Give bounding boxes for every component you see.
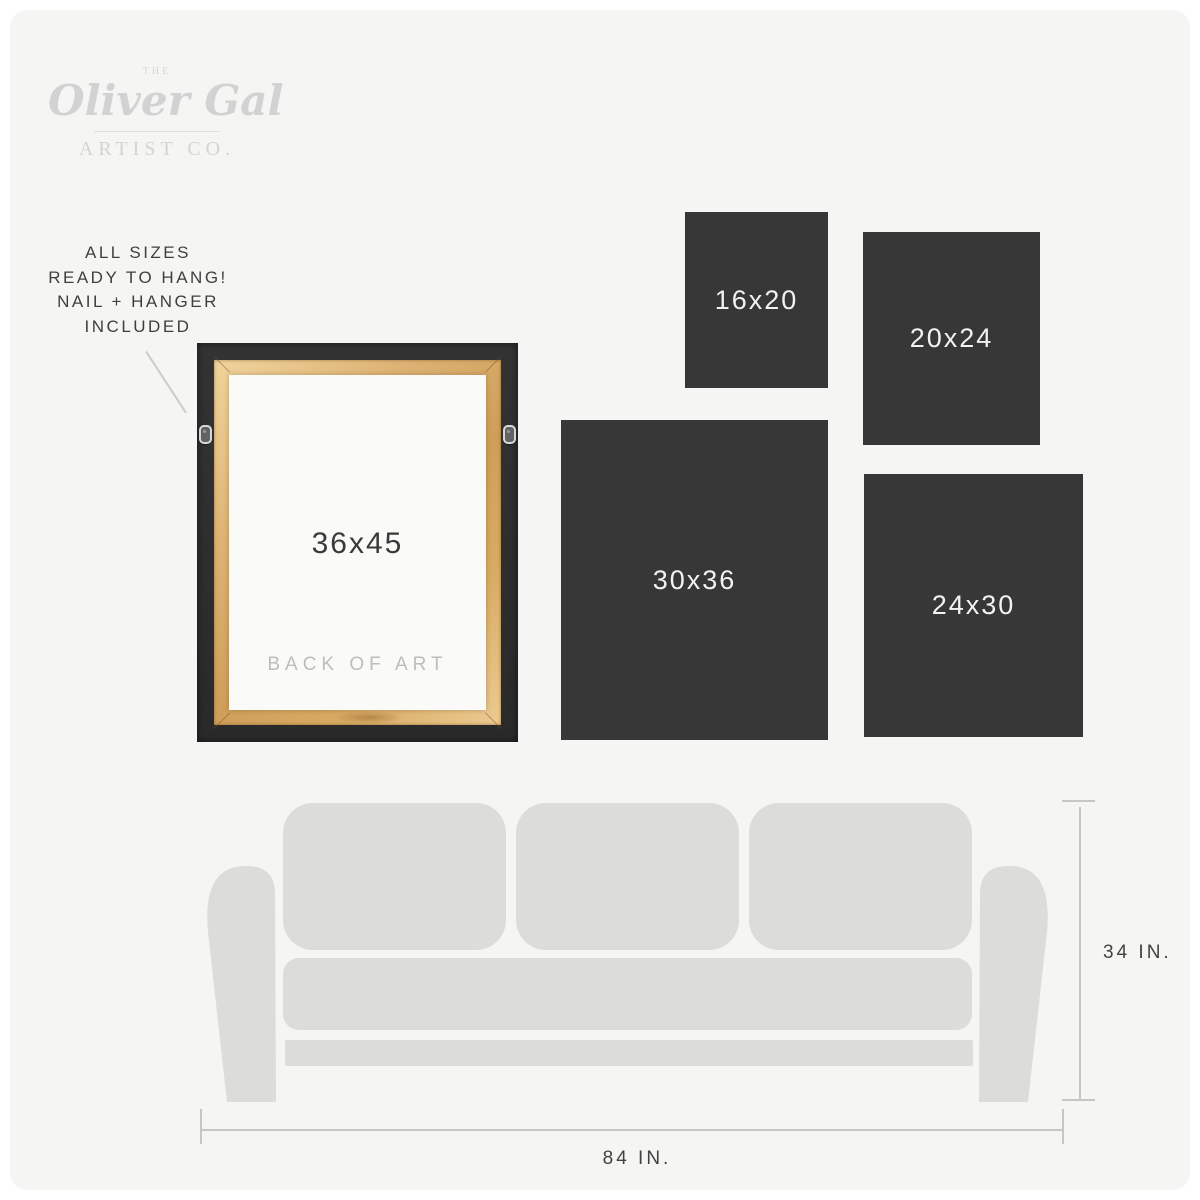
note-line-2: READY TO HANG! <box>26 266 250 291</box>
size-box-label: 16x20 <box>715 285 799 316</box>
size-box-24x30: 24x30 <box>864 474 1083 737</box>
width-measure-line <box>201 1129 1064 1131</box>
ready-to-hang-note: ALL SIZES READY TO HANG! NAIL + HANGER I… <box>26 241 250 340</box>
size-box-label: 30x36 <box>653 565 737 596</box>
height-measure-line <box>1079 807 1081 1099</box>
brand-logo-subtitle: ARTIST CO. <box>48 138 266 161</box>
sofa-back-cushion-2 <box>516 803 739 950</box>
note-leader-line <box>145 351 186 413</box>
brand-logo-divider <box>94 131 220 132</box>
size-box-16x20: 16x20 <box>685 212 828 388</box>
sofa-arm-left <box>207 866 276 1102</box>
wood-knot <box>334 711 404 724</box>
back-of-art-caption: BACK OF ART <box>197 654 518 676</box>
mitre-joint-top-right <box>485 356 501 372</box>
height-measure-cap-bottom <box>1062 1099 1095 1101</box>
size-box-label: 24x30 <box>932 590 1016 621</box>
note-line-1: ALL SIZES <box>26 241 250 266</box>
sofa-height-label: 34 IN. <box>1103 942 1172 964</box>
note-line-3: NAIL + HANGER <box>26 290 250 315</box>
brand-logo: THE Oliver Gal ARTIST CO. <box>48 66 266 161</box>
hanger-hardware-right <box>503 425 516 444</box>
sofa-base <box>285 1040 973 1066</box>
size-box-20x24: 20x24 <box>863 232 1040 445</box>
mitre-joint-bottom-right <box>485 712 501 728</box>
width-measure-cap-right <box>1062 1109 1064 1144</box>
hanger-hardware-left <box>199 425 212 444</box>
sofa-seat-cushion <box>283 958 972 1030</box>
mitre-joint-bottom-left <box>214 712 230 728</box>
sofa-width-label: 84 IN. <box>547 1148 727 1170</box>
width-measure-cap-left <box>200 1109 202 1144</box>
mitre-joint-top-left <box>214 356 230 372</box>
featured-size-label: 36x45 <box>197 527 518 561</box>
size-box-label: 20x24 <box>910 323 994 354</box>
height-measure-cap-top <box>1062 800 1095 802</box>
sofa-back-cushion-3 <box>749 803 972 950</box>
note-line-4: INCLUDED <box>26 315 250 340</box>
featured-frame-back: 36x45 BACK OF ART <box>197 343 518 742</box>
size-guide-canvas: THE Oliver Gal ARTIST CO. ALL SIZES READ… <box>10 10 1190 1190</box>
sofa-silhouette <box>195 800 1060 1110</box>
sofa-arm-right <box>979 866 1048 1102</box>
brand-logo-name: Oliver Gal <box>48 77 266 125</box>
size-box-30x36: 30x36 <box>561 420 828 740</box>
sofa-back-cushion-1 <box>283 803 506 950</box>
